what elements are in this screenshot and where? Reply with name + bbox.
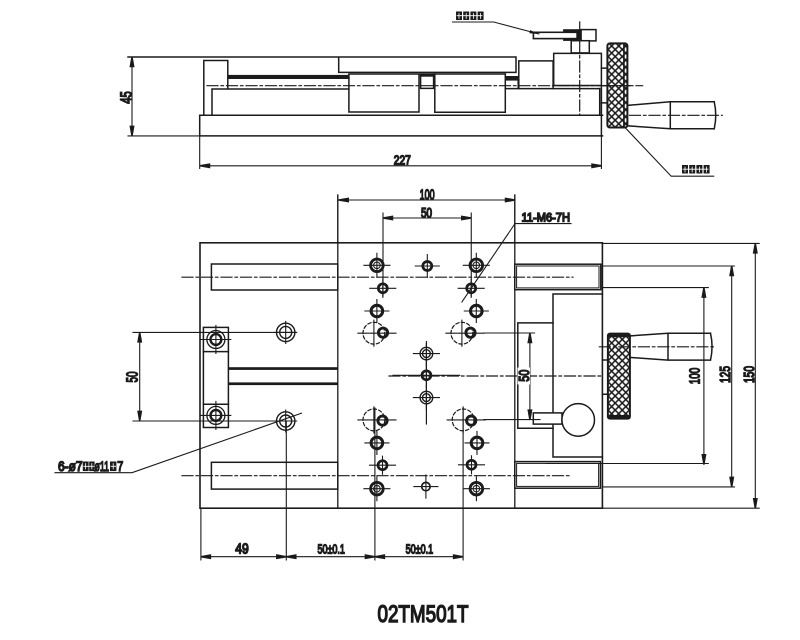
svg-text:6-ø7: 6-ø7: [58, 458, 83, 474]
svg-text:11-M6-7H: 11-M6-7H: [522, 210, 571, 224]
svg-text:50: 50: [125, 371, 142, 382]
svg-text:ø11: ø11: [95, 458, 110, 474]
svg-text:100: 100: [420, 187, 435, 203]
svg-text:50±0.1: 50±0.1: [406, 541, 434, 556]
svg-text:50: 50: [517, 370, 533, 382]
svg-text:50: 50: [421, 205, 432, 220]
svg-text:50±0.1: 50±0.1: [317, 541, 345, 556]
svg-text:125: 125: [717, 366, 734, 383]
svg-text:49: 49: [235, 542, 249, 558]
svg-text:150: 150: [741, 366, 758, 383]
svg-text:02TM501T: 02TM501T: [378, 601, 469, 628]
svg-text:100: 100: [686, 368, 703, 385]
svg-text:45: 45: [119, 91, 136, 104]
svg-text:7: 7: [117, 458, 123, 474]
svg-text:227: 227: [394, 152, 411, 167]
